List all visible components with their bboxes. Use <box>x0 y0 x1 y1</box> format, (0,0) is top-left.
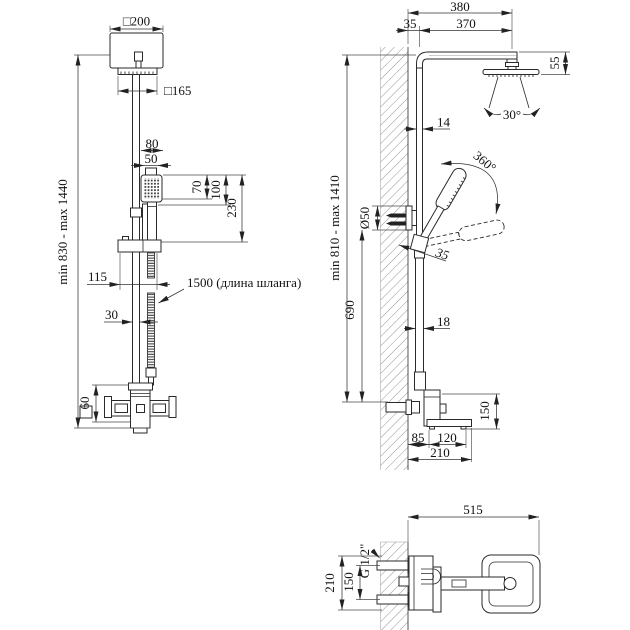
dim-label-swivel-angle: 360° <box>471 148 500 175</box>
dim-thread: G 1/2" <box>357 544 380 579</box>
dim-arm-offsets: 35 370 <box>396 16 512 47</box>
dim-label-lower-tube: 18 <box>437 314 450 329</box>
dim-label-height-side: min 810 - max 1410 <box>327 175 342 280</box>
dim-spout-projection: 85 120 210 <box>408 428 472 462</box>
dim-head-width: □200 <box>110 14 163 33</box>
dim-upper-tube: 14 <box>404 115 451 130</box>
dim-label-wall-offset: 35 <box>404 16 417 31</box>
shower-hose-front <box>146 252 156 385</box>
technical-drawing-page: □200 □165 80 50 70 100 <box>0 0 630 630</box>
dim-label-holder-diameter: Ø50 <box>357 207 372 229</box>
plan-view: 515 210 150 G 1/2" <box>322 502 540 630</box>
dim-label-spray-plate: □165 <box>164 83 191 98</box>
dim-label-body-width: 210 <box>322 573 337 593</box>
dim-label-spray-angle: 30° <box>503 107 521 122</box>
dim-label-handset-length: 230 <box>224 198 239 218</box>
shower-column-front <box>131 75 149 384</box>
shower-system-drawing: □200 □165 80 50 70 100 <box>0 0 630 630</box>
dim-label-head-drop: 55 <box>547 57 562 70</box>
overhead-shower-side <box>483 59 539 108</box>
dim-label-spout-length: 120 <box>437 430 457 445</box>
dim-label-head-size: □200 <box>123 14 150 29</box>
dim-label-column-width: 30 <box>105 307 118 322</box>
dim-label-hose-length: 1500 (длина шланга) <box>187 275 301 290</box>
dim-holder-height: 690 <box>342 230 362 402</box>
dim-label-mixer-height: 60 <box>77 397 92 410</box>
mixer-front <box>80 383 176 433</box>
dim-label-handset-outer: 80 <box>146 136 159 151</box>
hose-length-note: 1500 (длина шланга) <box>159 275 302 303</box>
arm-plan <box>441 577 516 590</box>
dim-label-wall-to-spout: 85 <box>412 430 425 445</box>
dim-spray-plate: □165 <box>118 76 191 98</box>
dim-overall-depth: 515 <box>408 502 539 555</box>
dim-label-upper-tube: 14 <box>437 115 451 130</box>
dim-label-spout-drop: 150 <box>477 401 492 421</box>
dim-label-overall-depth: 515 <box>463 502 483 517</box>
front-view: □200 □165 80 50 70 100 <box>55 14 301 434</box>
dim-label-handset-inner: 50 <box>145 151 158 166</box>
dim-label-arm-length: 370 <box>456 16 476 31</box>
dim-handset-heights: 70 100 230 <box>158 175 248 242</box>
dim-label-spout-overall: 210 <box>430 445 450 460</box>
dim-label-connection-spacing: 150 <box>341 572 356 592</box>
overhead-shower-front <box>110 33 163 75</box>
dim-label-handset-head: 100 <box>208 180 223 200</box>
dim-holder-width: 115 <box>87 253 170 290</box>
dim-lower-tube: 18 <box>404 314 450 329</box>
dim-label-thread: G 1/2" <box>357 544 372 579</box>
dim-label-holder-offset: 35 <box>433 244 451 263</box>
dim-spray-angle: 30° <box>484 107 540 122</box>
dim-label-holder-width: 115 <box>88 269 107 284</box>
side-view: 30° 360° 35 <box>327 0 570 470</box>
dim-label-handset-face: 70 <box>189 181 204 194</box>
dim-label-holder-height: 690 <box>342 300 357 320</box>
dim-label-arm-overall: 380 <box>450 0 470 14</box>
dim-label-height-front: min 830 - max 1440 <box>55 179 70 284</box>
